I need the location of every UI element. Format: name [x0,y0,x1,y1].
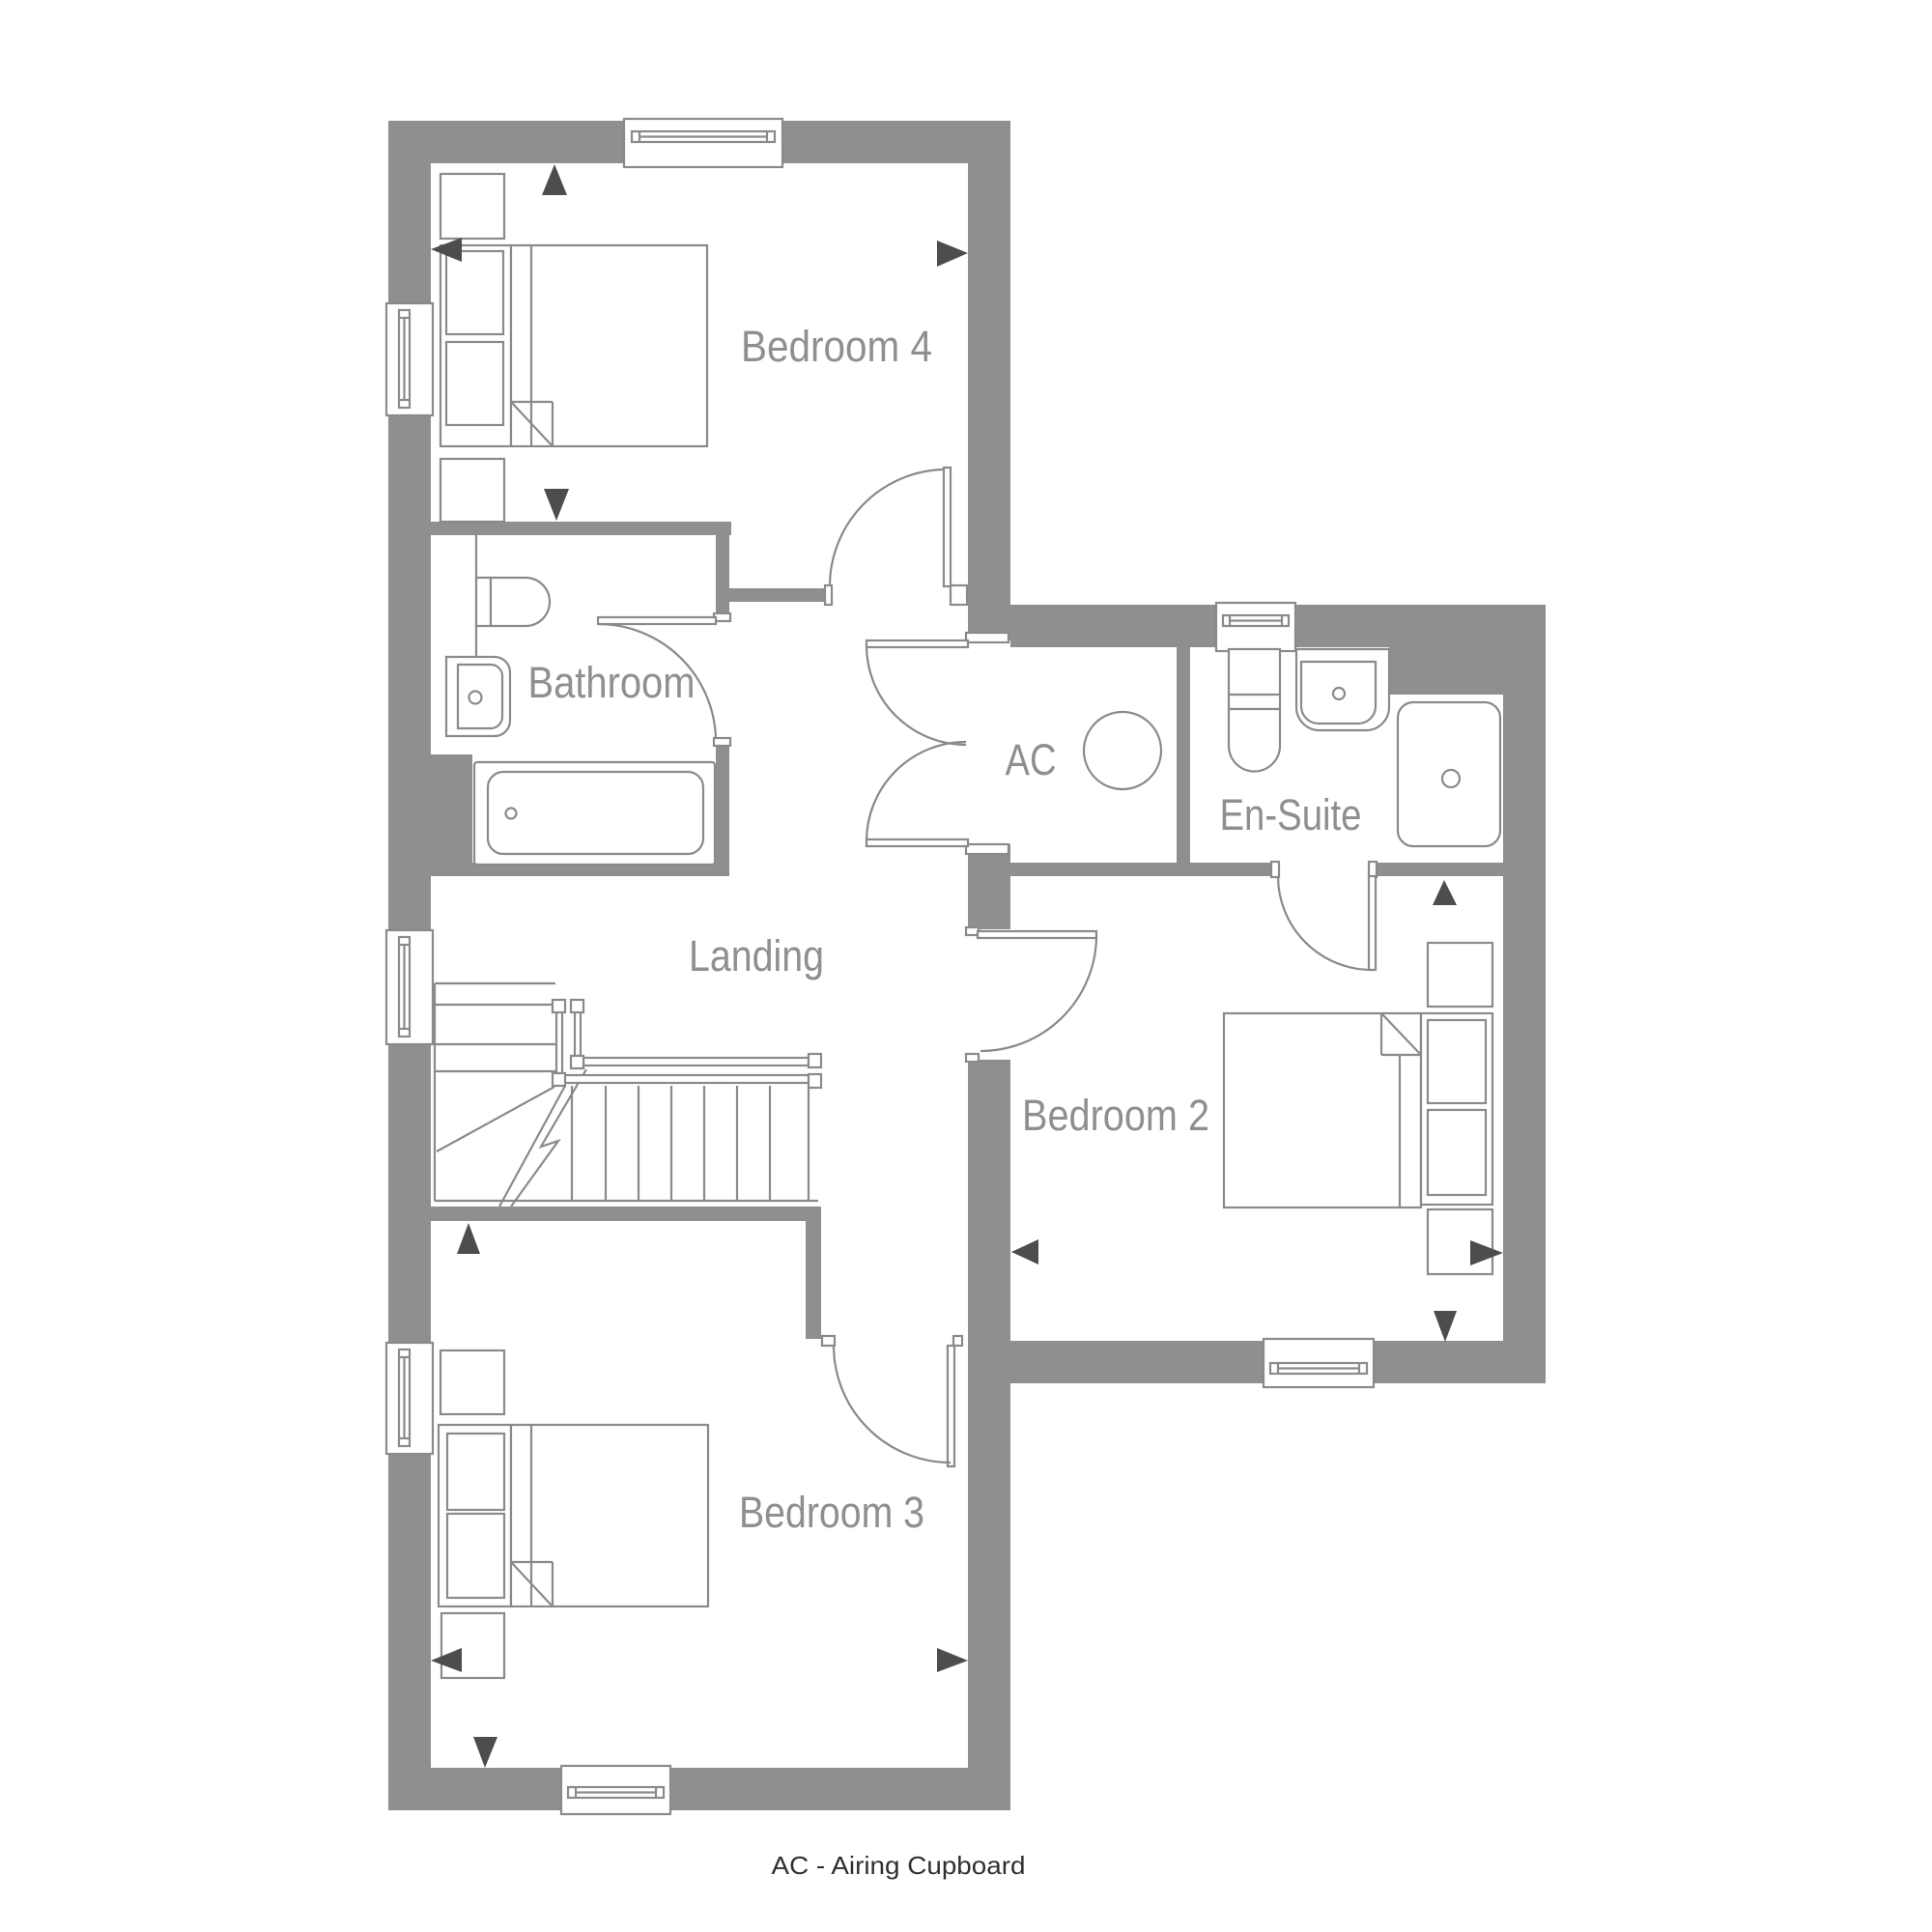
svg-text:Bedroom 4: Bedroom 4 [741,322,932,371]
svg-text:Bathroom: Bathroom [528,658,696,707]
svg-text:En-Suite: En-Suite [1220,790,1362,839]
svg-text:Bedroom 3: Bedroom 3 [739,1488,924,1537]
svg-text:Bedroom 2: Bedroom 2 [1022,1091,1209,1140]
svg-text:Landing: Landing [689,931,824,980]
svg-text:AC: AC [1006,735,1057,784]
svg-text:AC - Airing Cupboard: AC - Airing Cupboard [772,1851,1026,1880]
